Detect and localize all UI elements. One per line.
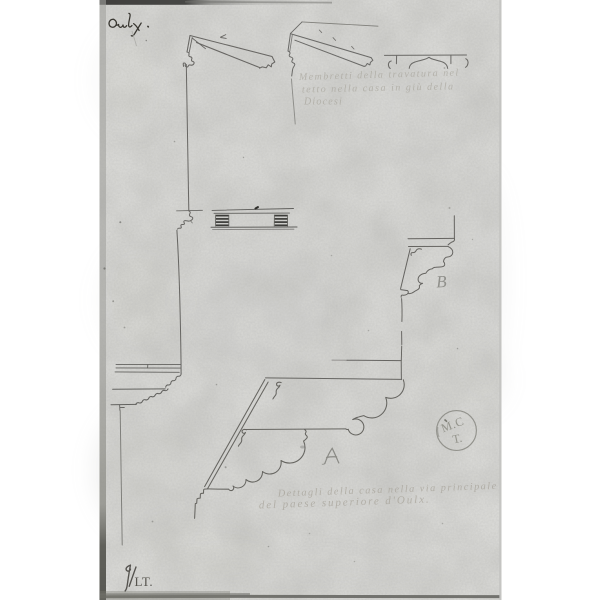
svg-text:LT.: LT. xyxy=(135,574,154,589)
svg-text:B: B xyxy=(436,272,448,292)
svg-text:Diocesi: Diocesi xyxy=(303,97,343,108)
